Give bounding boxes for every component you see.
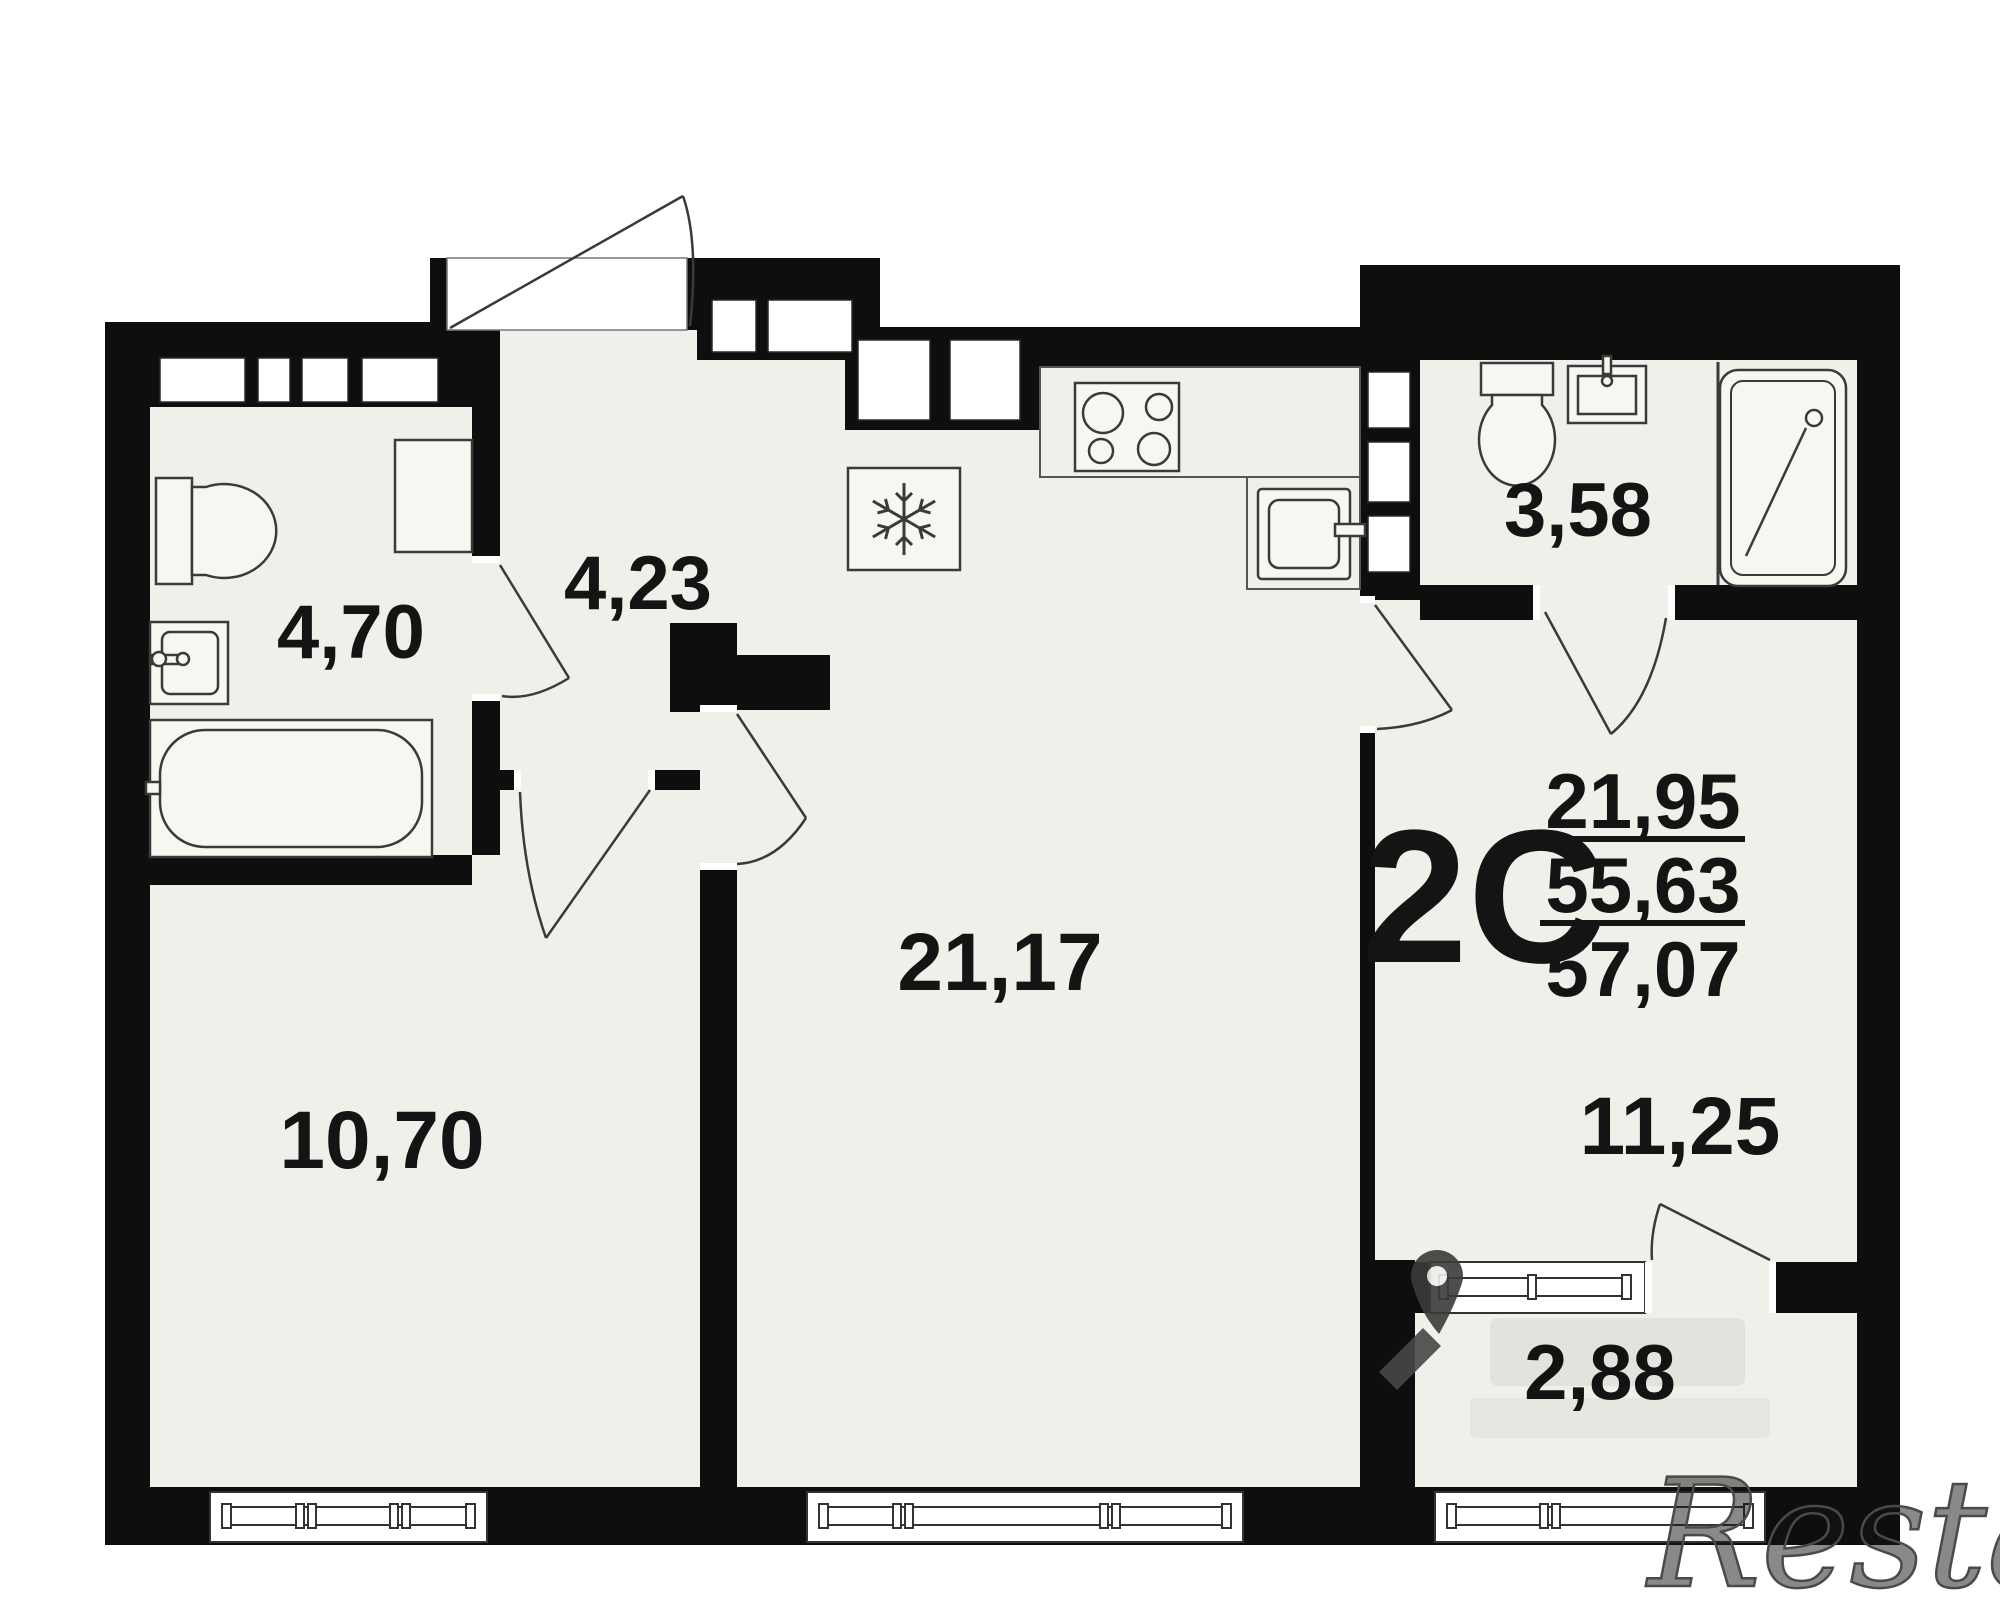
area-apartment: 55,63 — [1545, 841, 1740, 929]
room-label-kitchen-living: 21,17 — [897, 917, 1102, 1008]
area-divider-1 — [1540, 836, 1745, 842]
room-label-bathroom-left: 4,70 — [277, 590, 425, 675]
toilet-icon — [156, 478, 276, 584]
window-kitchen-living — [807, 1492, 1243, 1542]
room-label-entry-hall: 4,23 — [564, 541, 712, 626]
area-divider-2 — [1540, 920, 1745, 926]
apartment-summary: 2С 21,95 55,63 57,07 — [1362, 757, 1745, 1013]
floor-plan-image: 4,70 4,23 3,58 21,17 10,70 11,25 2,88 2С… — [0, 0, 2000, 1600]
shower-icon — [1718, 362, 1846, 586]
stove-icon — [1075, 383, 1179, 471]
sink-2-icon — [1568, 356, 1646, 423]
washing-machine-icon — [395, 440, 472, 552]
room-label-bedroom-right: 11,25 — [1580, 1081, 1781, 1172]
bathtub-icon — [146, 720, 432, 857]
window-bedroom-left — [210, 1492, 487, 1542]
floor-plan-svg: 4,70 4,23 3,58 21,17 10,70 11,25 2,88 2С… — [0, 0, 2000, 1600]
brand-watermark: Restate — [1645, 1448, 2000, 1600]
kitchen-sink-icon — [1258, 489, 1365, 579]
faint-watermark-blocks — [1470, 1318, 1770, 1438]
window-bedroom-right-to-balcony — [1430, 1262, 1645, 1313]
room-label-bedroom-left: 10,70 — [279, 1095, 484, 1186]
sink-icon — [150, 622, 228, 704]
fridge-icon — [848, 468, 960, 570]
area-living: 21,95 — [1545, 757, 1740, 845]
room-label-bathroom-right: 3,58 — [1504, 468, 1652, 553]
entrance-opening — [447, 258, 687, 330]
area-total: 57,07 — [1545, 925, 1740, 1013]
